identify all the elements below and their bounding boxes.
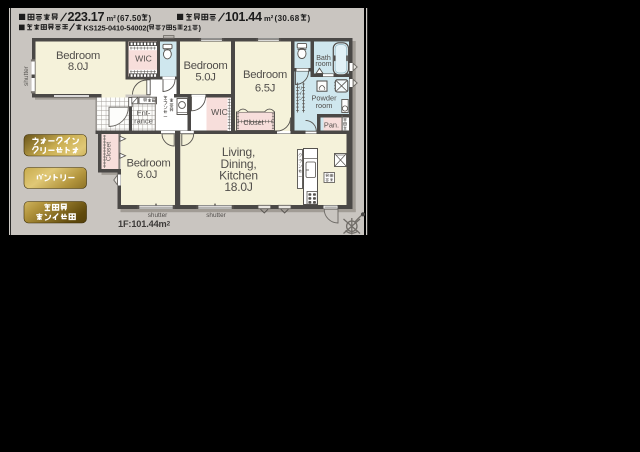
svg-text:shutter: shutter <box>23 65 30 86</box>
svg-text:Bedroom: Bedroom <box>126 158 170 170</box>
svg-text:WIC: WIC <box>135 53 152 63</box>
svg-text:(30.68: (30.68 <box>275 14 300 23</box>
svg-text:m²: m² <box>107 14 117 23</box>
svg-text:room: room <box>316 101 333 110</box>
svg-text:KS125-0410-54002(: KS125-0410-54002( <box>84 24 150 33</box>
svg-text:1F:101.44m2: 1F:101.44m2 <box>118 219 171 229</box>
svg-text:18.0J: 18.0J <box>224 180 253 194</box>
svg-text:223.17: 223.17 <box>68 10 105 24</box>
svg-text:): ) <box>308 14 311 23</box>
svg-text:5: 5 <box>173 24 177 33</box>
svg-text:Closet: Closet <box>243 118 263 127</box>
svg-text:shutter: shutter <box>206 212 226 219</box>
svg-text:21: 21 <box>184 24 192 33</box>
svg-text:Bedroom: Bedroom <box>243 69 287 81</box>
svg-text:5.0J: 5.0J <box>195 71 215 83</box>
svg-text:(67.50: (67.50 <box>117 14 142 23</box>
svg-text:7: 7 <box>162 24 166 33</box>
svg-text:Closet: Closet <box>106 142 113 161</box>
svg-text:6.5J: 6.5J <box>255 82 275 94</box>
svg-text:room: room <box>315 60 331 68</box>
svg-text:): ) <box>149 14 152 23</box>
svg-text:rance: rance <box>134 117 153 126</box>
svg-text:Bedroom: Bedroom <box>183 60 227 72</box>
svg-text:WIC: WIC <box>211 107 228 117</box>
svg-text:Pan.: Pan. <box>324 121 339 130</box>
svg-text:m²: m² <box>264 14 274 23</box>
svg-text:8.0J: 8.0J <box>68 61 88 73</box>
svg-text:101.44: 101.44 <box>225 10 262 24</box>
svg-text:6.0J: 6.0J <box>137 169 157 181</box>
svg-text:shutter: shutter <box>148 212 168 219</box>
